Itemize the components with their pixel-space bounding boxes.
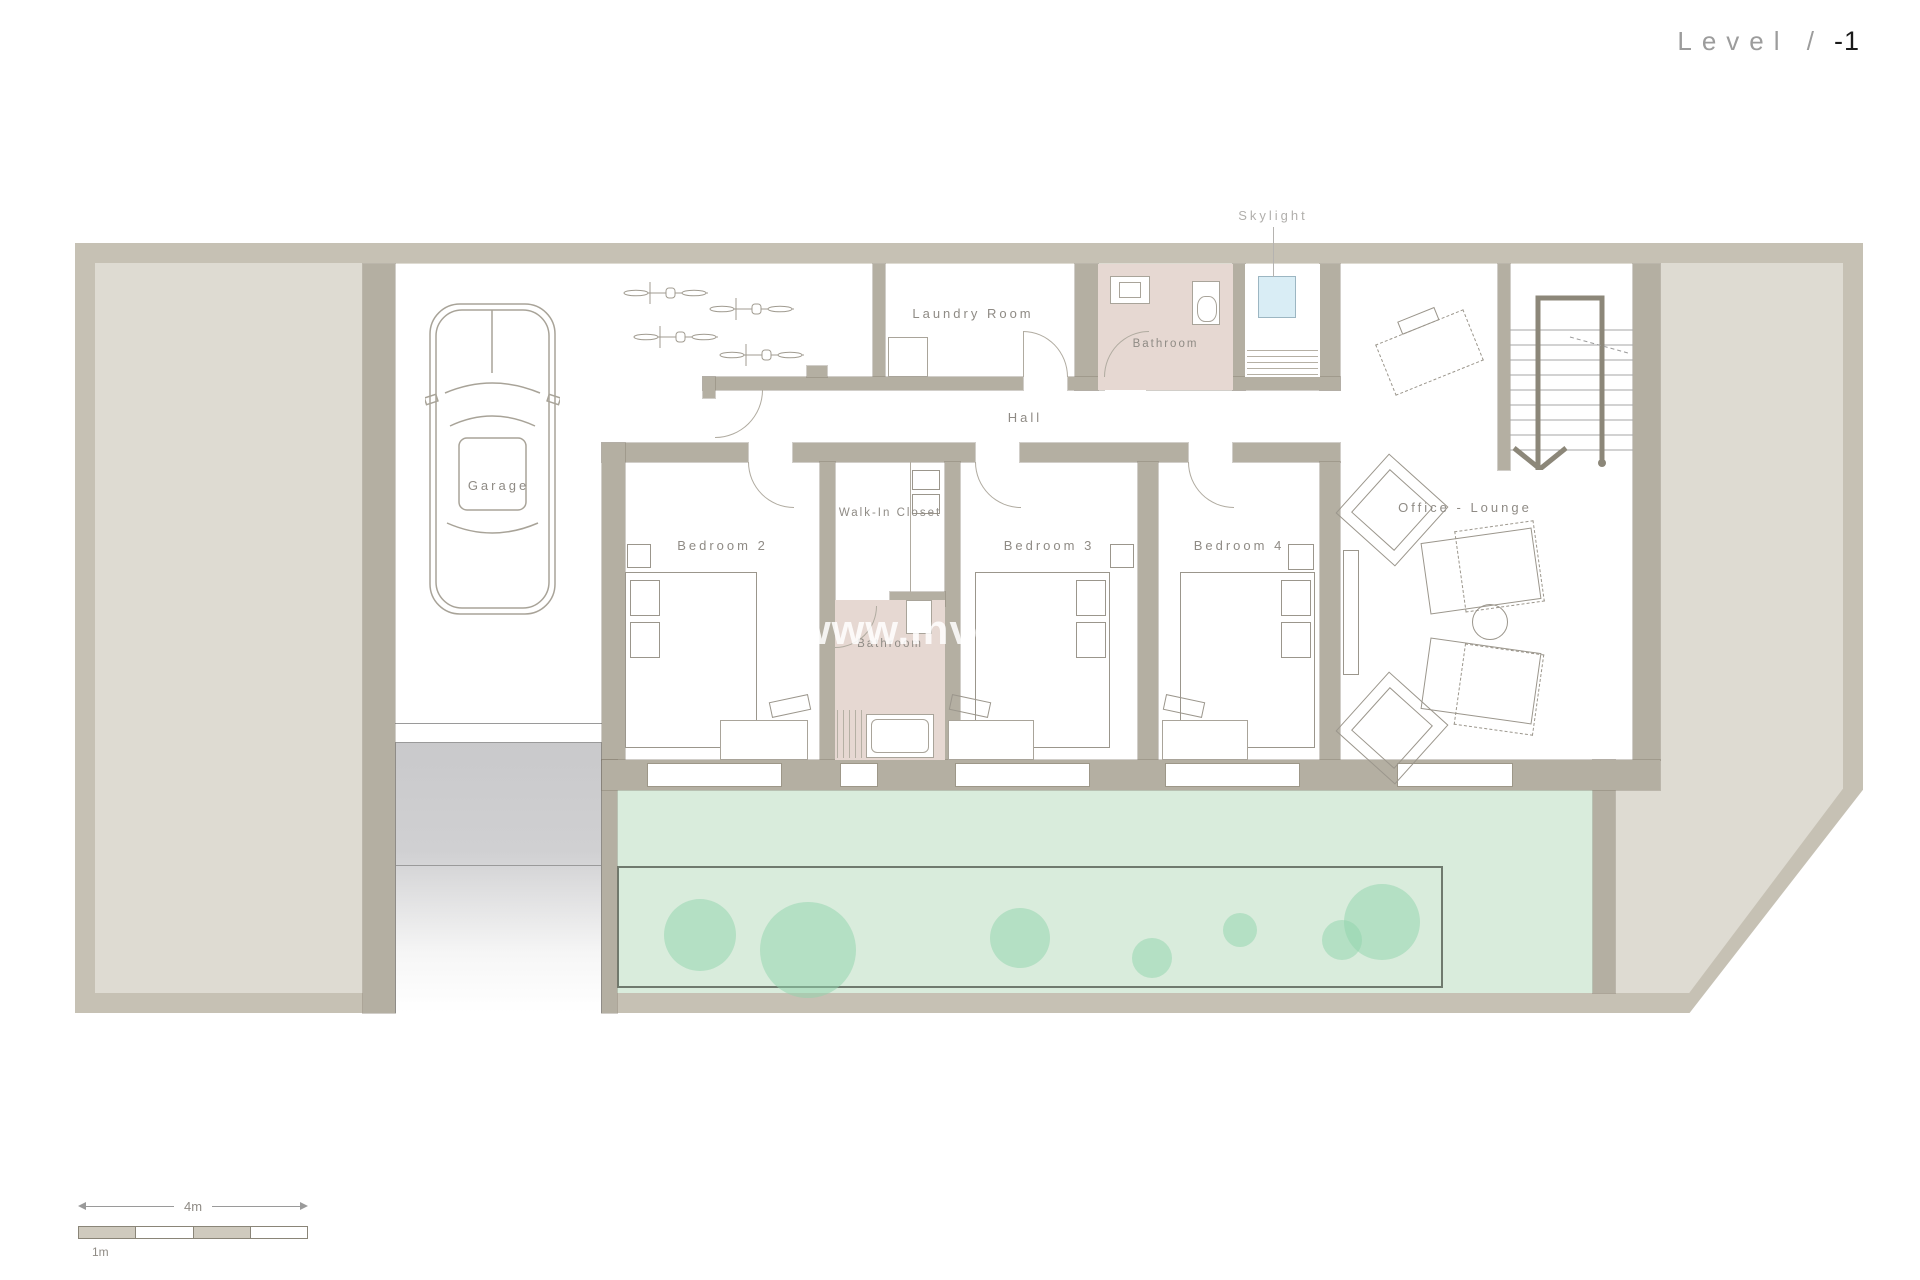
closet-divider	[910, 462, 911, 592]
bathtub-icon	[866, 714, 934, 758]
scale-unit-label: 1m	[92, 1245, 308, 1259]
scale-bar: 4m 1m	[78, 1198, 308, 1259]
wall	[363, 264, 395, 1013]
bicycle-icon	[708, 296, 796, 322]
sofa-cushion	[1454, 520, 1545, 612]
sofa	[1421, 638, 1542, 725]
wall	[793, 443, 975, 462]
window	[955, 763, 1090, 787]
wall	[703, 377, 1023, 390]
plant-circle	[1132, 938, 1172, 978]
plant-circle	[990, 908, 1050, 968]
toilet-bowl	[1197, 296, 1217, 322]
scale-bar-segments	[78, 1226, 308, 1239]
arrow-right-icon	[300, 1202, 308, 1210]
pillow	[1076, 622, 1106, 658]
room-label-laundry: Laundry Room	[873, 306, 1073, 321]
sofa	[1421, 528, 1542, 615]
plant-circle	[1223, 913, 1257, 947]
washing-machine-icon	[888, 337, 928, 377]
scale-total-label: 4m	[184, 1199, 202, 1214]
garage-door	[395, 723, 602, 743]
level-number: -1	[1834, 26, 1860, 56]
desk	[720, 720, 808, 760]
wall	[1498, 264, 1510, 470]
skylight-window	[1258, 276, 1296, 318]
page-title: Level /-1	[1540, 26, 1860, 57]
wall	[873, 264, 885, 380]
wall	[602, 760, 617, 1013]
pillow	[1281, 580, 1311, 616]
level-label: Level /	[1677, 26, 1824, 56]
pillow	[1281, 622, 1311, 658]
room-label-garage: Garage	[395, 478, 602, 493]
door-leaf	[1023, 331, 1024, 377]
ramp-line	[396, 865, 601, 866]
wall	[1233, 264, 1245, 390]
sofa-cushion	[1454, 643, 1545, 735]
pillow	[630, 580, 660, 616]
closet-shelf	[912, 470, 940, 490]
bicycle-icon	[632, 324, 720, 350]
bench-icon	[1247, 350, 1318, 376]
sink-icon	[1110, 276, 1150, 304]
wall	[1138, 462, 1158, 760]
toilet-icon	[1192, 281, 1220, 325]
window	[647, 763, 782, 787]
plant-circle	[1344, 884, 1420, 960]
bathtub-inner	[871, 719, 929, 753]
driveway-ramp	[395, 743, 602, 1013]
wall	[1020, 443, 1188, 462]
arrow-left-icon	[78, 1202, 86, 1210]
wall	[1320, 462, 1340, 760]
pillow	[1076, 580, 1106, 616]
wall	[1633, 264, 1660, 760]
window	[840, 763, 878, 787]
window	[1397, 763, 1513, 787]
floor-plan-canvas: Level /-1	[0, 0, 1920, 1280]
plant-circle	[664, 899, 736, 971]
wall	[703, 377, 715, 398]
sink-basin	[1119, 282, 1141, 298]
shower-floor	[837, 710, 863, 758]
wall	[1593, 760, 1615, 993]
room-label-bedroom3: Bedroom 3	[960, 538, 1138, 553]
plant-circle	[760, 902, 856, 998]
room-label-office: Office - Lounge	[1340, 500, 1590, 515]
stairs-icon	[1510, 265, 1633, 470]
round-table	[1472, 604, 1508, 640]
sideboard	[1343, 550, 1359, 675]
wall	[1233, 443, 1340, 462]
skylight-annotation: Skylight	[1203, 208, 1343, 223]
room-label-hall: Hall	[940, 410, 1110, 425]
room-label-bathroom-top: Bathroom	[1098, 338, 1233, 350]
wall	[1075, 264, 1098, 390]
desk	[948, 720, 1034, 760]
wall	[1320, 264, 1340, 390]
watermark: www.invest	[798, 606, 1010, 654]
bicycle-icon	[622, 280, 710, 306]
wall-column	[807, 366, 827, 377]
car-icon	[425, 298, 560, 620]
bicycle-icon	[718, 342, 806, 368]
room-label-bedroom2: Bedroom 2	[625, 538, 820, 553]
window	[1165, 763, 1300, 787]
desk	[1162, 720, 1248, 760]
room-label-bedroom4: Bedroom 4	[1158, 538, 1320, 553]
scale-dimension-line: 4m	[78, 1198, 308, 1214]
pillow	[630, 622, 660, 658]
skylight-leader-line	[1273, 227, 1274, 277]
room-label-walkin-closet: Walk-In Closet	[835, 505, 945, 522]
wall	[602, 443, 625, 760]
